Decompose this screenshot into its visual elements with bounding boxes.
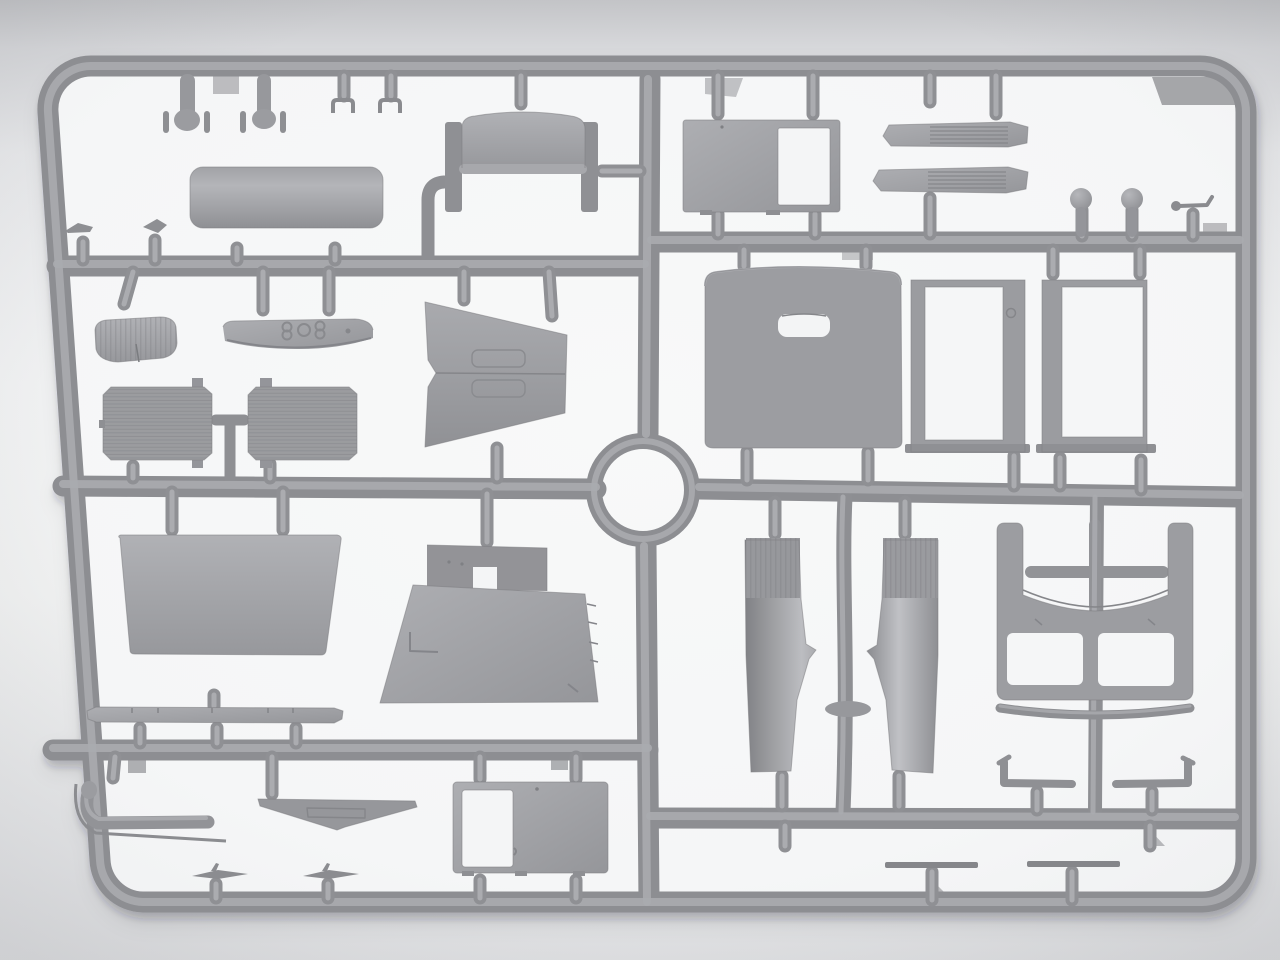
part-sill-strip-a [885,862,978,868]
photo-canvas [0,0,1280,960]
part-radiator-core-b [248,378,357,468]
part-fuel-tank-panel [190,167,383,228]
part-fender-link [825,701,871,717]
part-radiator-core-a [99,378,212,468]
runner-highlight [841,497,843,812]
part-door-frame-panel [683,120,840,215]
molded-tag [213,76,239,94]
part-sill-strip-b [1027,861,1120,867]
part-cab-rear-wall [705,267,902,448]
part-window-frame-a [905,280,1030,453]
part-window-frame-b [1036,280,1156,453]
gate-stub [549,272,552,316]
part-bumper-bar [87,707,343,723]
sprue-photo [0,0,1280,960]
part-cab-door [453,782,608,876]
runner-highlight [63,484,596,487]
part-seat-cushion [95,317,177,362]
runner-highlight [644,546,647,902]
runner-highlight [650,816,1235,817]
part-louver-hood-a [883,122,1028,147]
part-louver-hood-b [873,167,1028,193]
sprue [48,66,1246,906]
runner-highlight [646,79,648,434]
part-windshield-panel [119,535,341,655]
gate-stub [113,757,115,778]
